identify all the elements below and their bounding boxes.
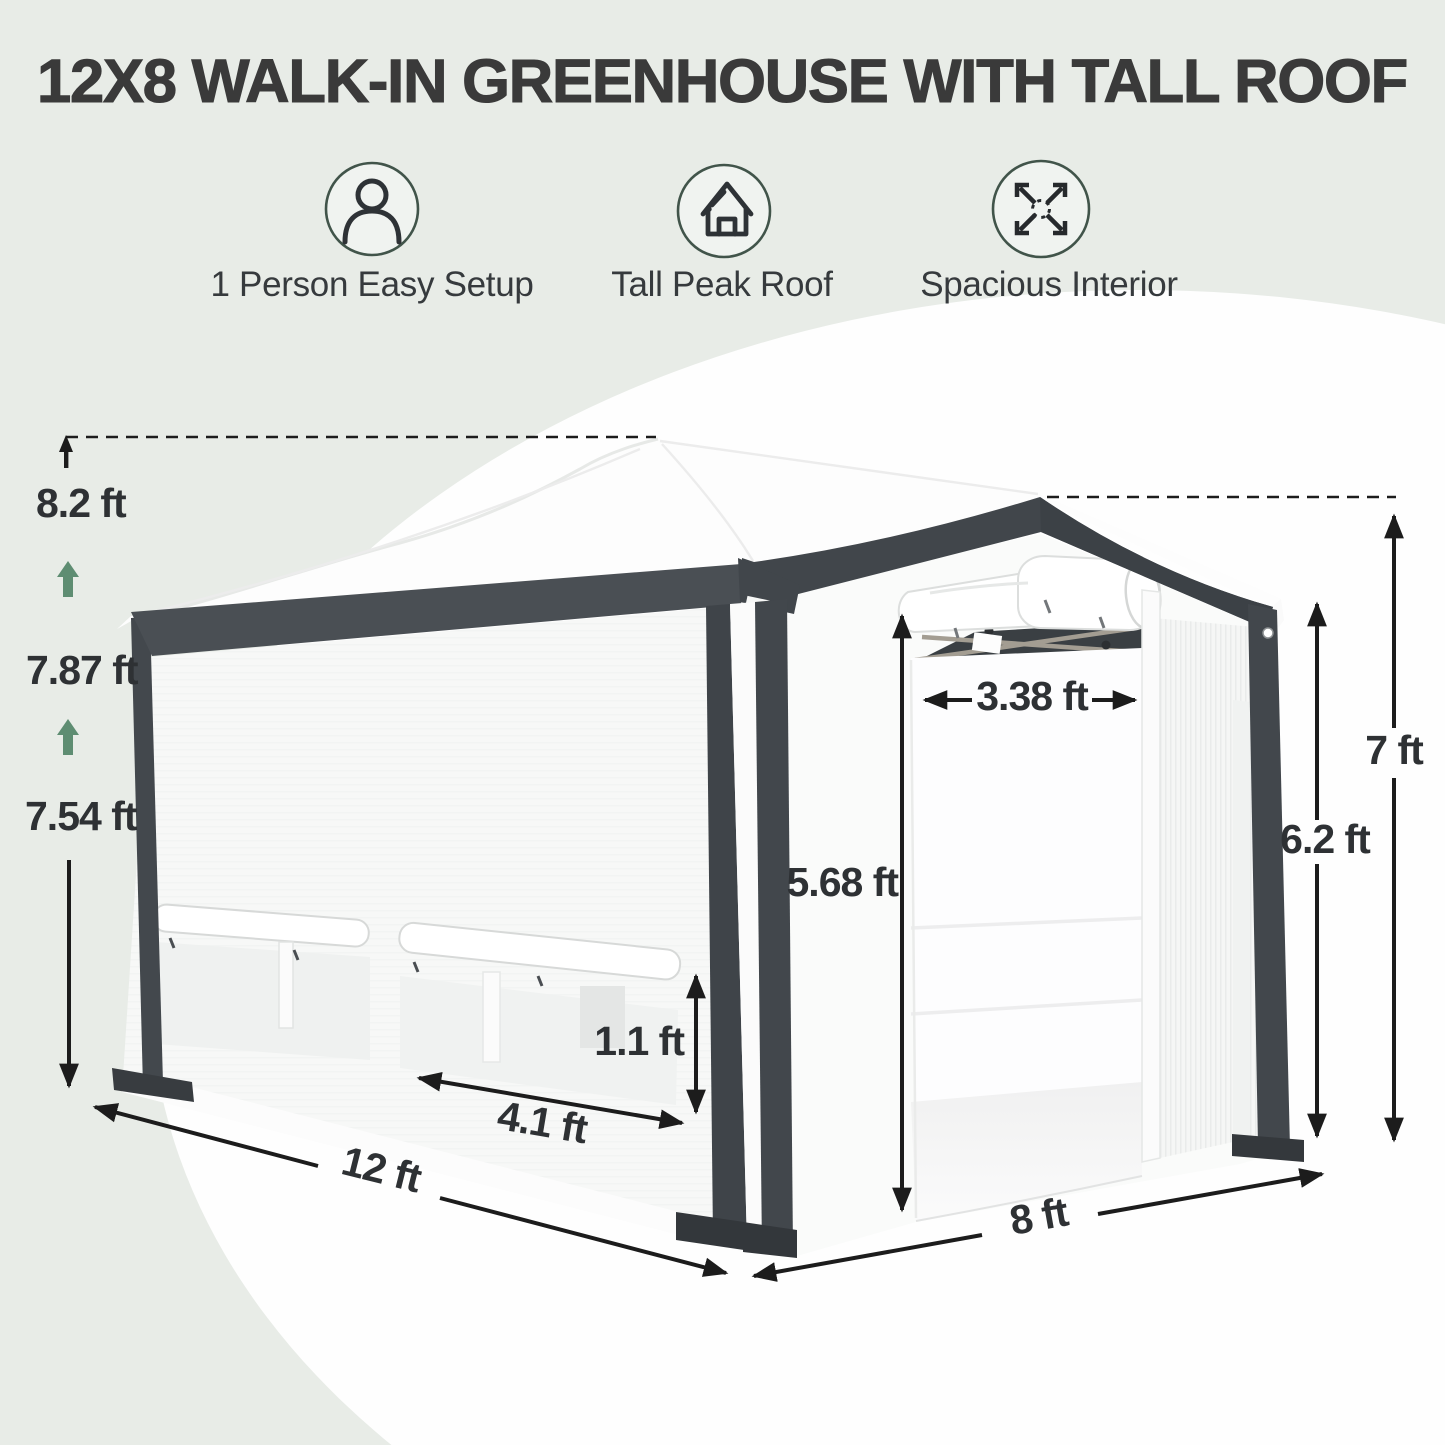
svg-text:Spacious Interior: Spacious Interior (920, 265, 1178, 304)
svg-text:1 Person Easy Setup: 1 Person Easy Setup (210, 265, 533, 304)
svg-text:1.1 ft: 1.1 ft (594, 1018, 685, 1064)
svg-text:8.2 ft: 8.2 ft (36, 480, 127, 526)
svg-text:6.2 ft: 6.2 ft (1280, 816, 1371, 862)
svg-text:Tall Peak Roof: Tall Peak Roof (611, 265, 833, 304)
svg-text:5.68 ft: 5.68 ft (787, 859, 900, 905)
svg-text:7.87 ft: 7.87 ft (26, 647, 139, 693)
svg-text:7 ft: 7 ft (1365, 727, 1424, 773)
svg-text:3.38 ft: 3.38 ft (976, 673, 1089, 719)
svg-text:12X8 WALK-IN GREENHOUSE WITH T: 12X8 WALK-IN GREENHOUSE WITH TALL ROOF (37, 47, 1407, 116)
svg-text:7.54 ft: 7.54 ft (25, 793, 138, 839)
